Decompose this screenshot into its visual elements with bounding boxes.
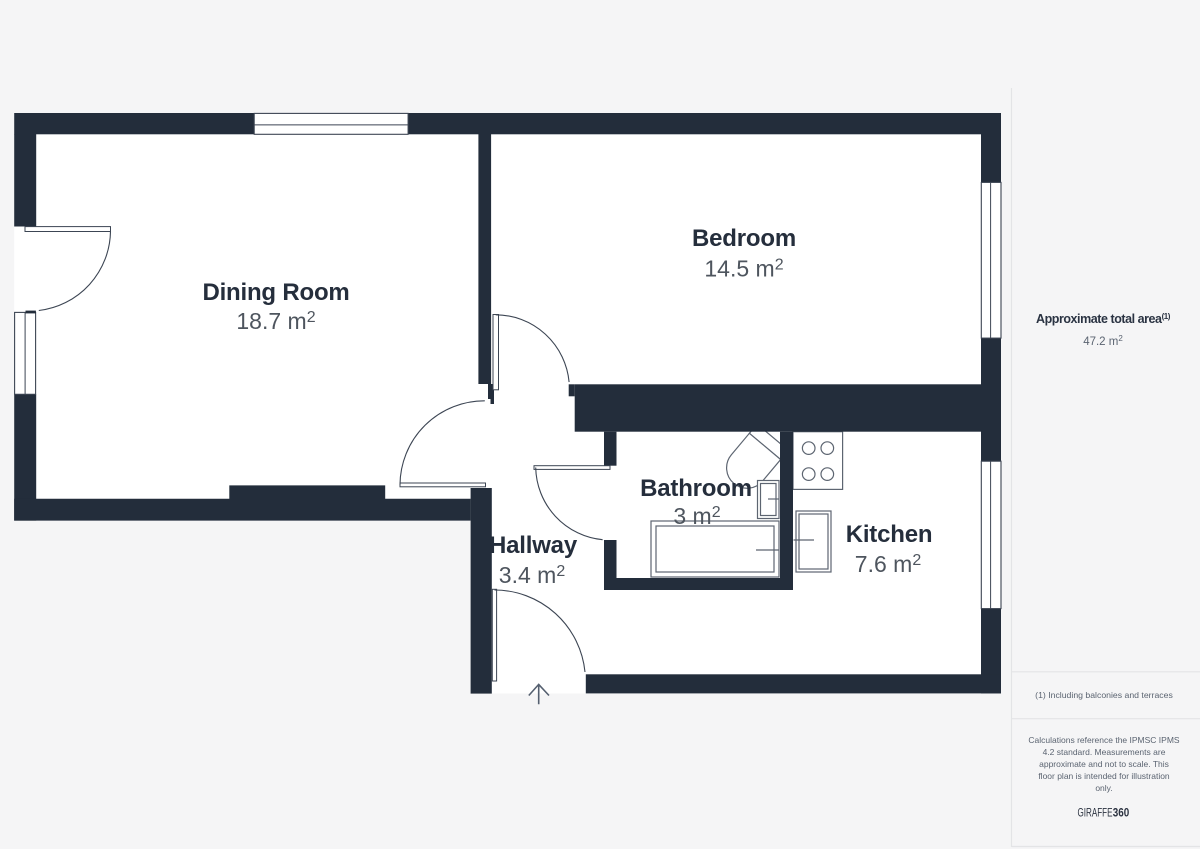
svg-text:7.6 m2: 7.6 m2 (855, 551, 922, 577)
svg-text:Hallway: Hallway (489, 532, 578, 559)
svg-text:18.7 m2: 18.7 m2 (236, 308, 315, 334)
svg-text:GIRAFFE: GIRAFFE (1078, 808, 1113, 820)
svg-text:Approximate total area(1): Approximate total area(1) (1036, 312, 1171, 326)
svg-text:47.2 m2: 47.2 m2 (1083, 334, 1123, 348)
svg-text:only.: only. (1095, 783, 1112, 793)
svg-text:14.5 m2: 14.5 m2 (704, 256, 783, 282)
svg-text:Dining Room: Dining Room (202, 279, 349, 306)
svg-text:Calculations reference the IPM: Calculations reference the IPMSC IPMS (1028, 735, 1180, 745)
svg-text:4.2 standard. Measurements are: 4.2 standard. Measurements are (1043, 747, 1166, 757)
svg-text:floor plan is intended for ill: floor plan is intended for illustration (1038, 771, 1170, 781)
svg-text:(1) Including balconies and te: (1) Including balconies and terraces (1035, 690, 1173, 700)
svg-text:360: 360 (1113, 808, 1130, 820)
svg-text:Bedroom: Bedroom (692, 225, 796, 252)
svg-text:Kitchen: Kitchen (846, 521, 933, 548)
svg-text:approximate and not to scale.: approximate and not to scale. This (1039, 759, 1169, 769)
svg-text:3.4 m2: 3.4 m2 (499, 562, 566, 588)
svg-text:Bathroom: Bathroom (640, 475, 752, 502)
